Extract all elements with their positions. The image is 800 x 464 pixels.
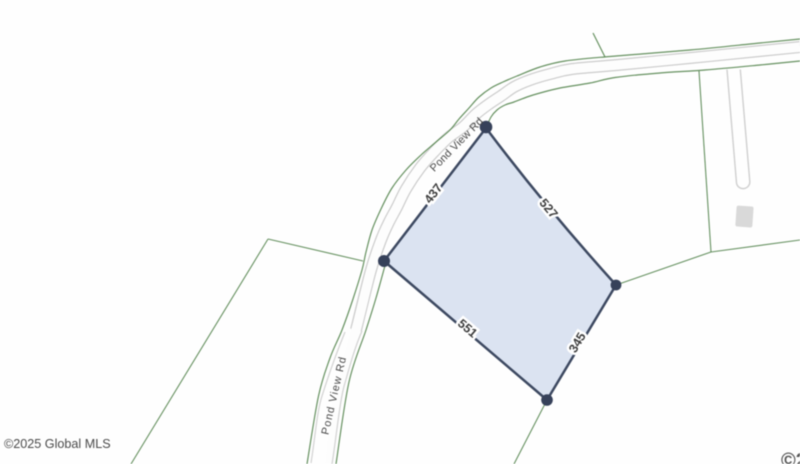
svg-text:©2025 Global MLS: ©2025 Global MLS [4, 437, 111, 451]
svg-text:©2025: ©2025 [781, 450, 800, 464]
